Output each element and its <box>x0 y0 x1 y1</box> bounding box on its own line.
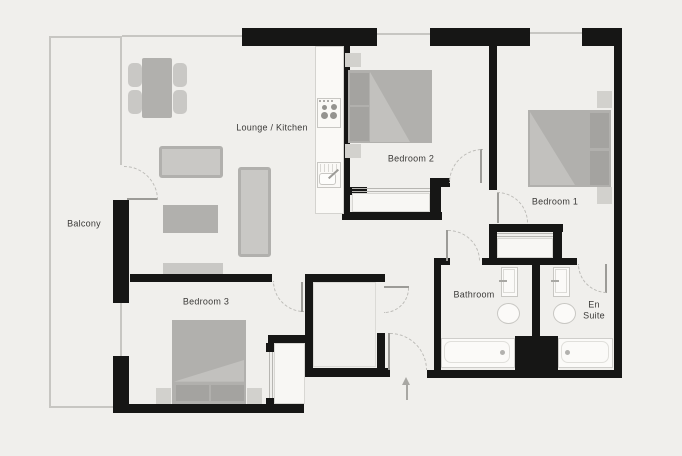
window-line-top-1 <box>377 33 430 35</box>
hob-burner <box>321 112 328 119</box>
bedroom1-wardrobe-track <box>497 233 553 234</box>
nightstand <box>156 388 171 404</box>
sink-drainer <box>320 164 321 172</box>
tv-bench <box>163 263 223 274</box>
wall-bedroom3-top <box>130 274 272 282</box>
coffee-table <box>163 205 218 233</box>
bedroom3-wardrobe <box>274 343 305 404</box>
wall-bedroom2-corner-v <box>430 178 441 220</box>
dining-table <box>142 58 172 118</box>
toilet-ensuite <box>553 303 576 324</box>
dining-chair <box>173 90 187 114</box>
pillow <box>211 385 244 401</box>
window-line-top-2 <box>530 32 582 34</box>
balcony-outline-bottom <box>49 406 114 408</box>
basin-tap <box>551 280 559 282</box>
wall-bathroom-top-b <box>482 258 577 265</box>
entrance-arrow-icon <box>406 384 408 400</box>
wall-right <box>614 28 622 378</box>
pillow <box>590 113 609 148</box>
window-line-lounge-left <box>120 38 122 165</box>
room-label-ensuite: En Suite <box>577 299 611 320</box>
bedroom3-wardrobe-track <box>272 352 273 398</box>
hob-burner <box>330 112 337 119</box>
room-label-balcony: Balcony <box>67 219 101 230</box>
hob-burner <box>331 104 337 110</box>
wall-central <box>489 46 497 190</box>
sink-drainer <box>328 164 329 172</box>
window-line-lounge-top <box>122 35 242 37</box>
hob-knob <box>323 100 325 102</box>
wall-bedroom1-closet-left <box>489 224 497 262</box>
pillow <box>176 385 209 401</box>
door-swing-arc-balcony <box>124 166 158 200</box>
bedroom2-wardrobe <box>352 193 430 212</box>
basin-tap <box>499 280 507 282</box>
pillow <box>350 107 369 141</box>
bathtub-drain <box>565 350 570 355</box>
wall-bedroom2-closet-bottom <box>342 212 442 220</box>
bedroom3-wardrobe-track <box>269 352 270 398</box>
pillow <box>590 151 609 185</box>
wall-top-b <box>430 28 530 46</box>
dining-chair <box>128 63 142 87</box>
wall-bedroom3-closet-top <box>268 335 310 343</box>
wall-bedroom1-closet-right <box>553 224 562 262</box>
balcony-outline-left <box>49 36 51 408</box>
door-swing-arc-bedroom2 <box>449 149 483 183</box>
wall-utility-east-lower <box>377 333 385 377</box>
wall-utility-top <box>305 274 385 282</box>
door-swing-arc-bedroom3 <box>273 281 304 312</box>
room-label-bathroom: Bathroom <box>453 290 494 301</box>
sofa <box>159 146 223 178</box>
wall-bottom-left <box>113 404 304 413</box>
nightstand <box>597 91 612 108</box>
floor-plan: Balcony Lounge / Kitchen Bedroom 2 Bedro… <box>0 0 682 456</box>
wall-top-a <box>242 28 377 46</box>
kitchen-counter <box>315 46 344 214</box>
room-label-bedroom2: Bedroom 2 <box>388 154 434 165</box>
entrance-arrowhead-icon <box>402 377 410 385</box>
dining-chair <box>173 63 187 87</box>
sink-drainer <box>332 164 333 172</box>
wall-bathroom-west <box>434 258 441 377</box>
wall-bedroom3-wardrobe-stub-bottom <box>266 398 274 407</box>
wall-left-upper <box>113 200 129 303</box>
nightstand <box>345 144 361 158</box>
utility-closet-outline <box>313 282 376 367</box>
hob-burner <box>322 105 327 110</box>
door-swing-arc-bathroom <box>448 230 480 261</box>
door-swing-arc-bedroom1 <box>497 192 528 223</box>
wall-bath-ensuite-divider <box>532 258 540 338</box>
wall-bath-ensuite-block <box>515 336 558 376</box>
wall-utility-west <box>305 274 313 370</box>
door-swing-arc-utility <box>384 288 409 313</box>
dining-chair <box>128 90 142 114</box>
wall-left-lower <box>113 356 129 406</box>
toilet-bathroom <box>497 303 520 324</box>
bathtub-drain <box>500 350 505 355</box>
pillow <box>350 73 369 105</box>
bedroom2-wardrobe-track <box>352 188 430 189</box>
nightstand <box>597 187 612 204</box>
chaise-sofa <box>238 167 271 257</box>
nightstand <box>345 53 361 67</box>
door-swing-arc-entrance <box>390 333 427 370</box>
room-label-bedroom1: Bedroom 1 <box>532 197 578 208</box>
window-line-bedroom3-left <box>120 303 122 356</box>
nightstand <box>247 388 262 404</box>
room-label-bedroom3: Bedroom 3 <box>183 297 229 308</box>
hob-knob <box>319 100 321 102</box>
bedroom2-wardrobe-track <box>352 191 430 192</box>
wall-bedroom3-wardrobe-stub-top <box>266 343 274 352</box>
wall-bedroom1-closet-top <box>489 224 563 232</box>
balcony-outline-top <box>49 36 122 38</box>
room-label-lounge-kitchen: Lounge / Kitchen <box>236 123 308 134</box>
hob-knob <box>331 100 333 102</box>
bedroom1-wardrobe <box>497 238 553 258</box>
hob-knob <box>327 100 329 102</box>
sink-drainer <box>324 164 325 172</box>
door-swing-arc-ensuite <box>578 264 607 293</box>
bedroom1-wardrobe-track <box>497 236 553 237</box>
